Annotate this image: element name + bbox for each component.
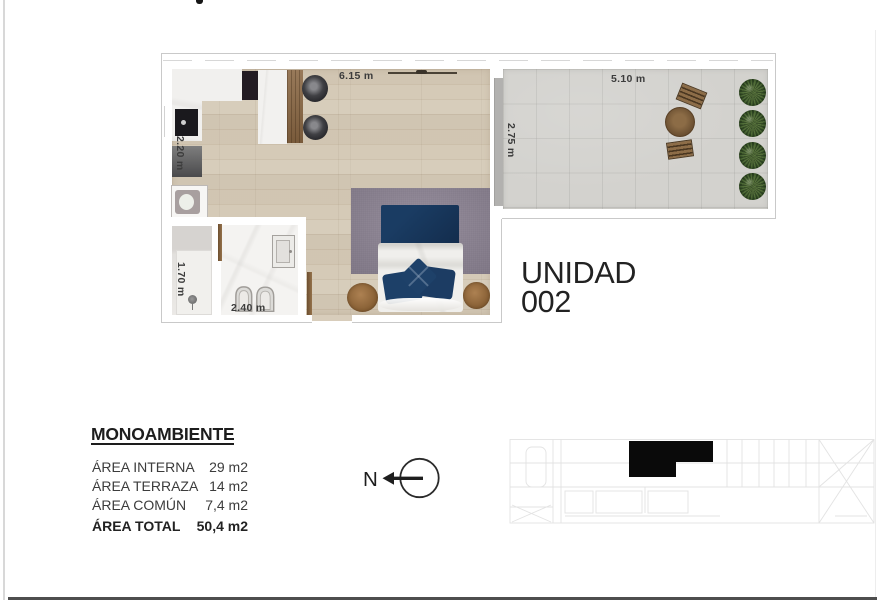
svg-text:N: N (363, 468, 378, 491)
